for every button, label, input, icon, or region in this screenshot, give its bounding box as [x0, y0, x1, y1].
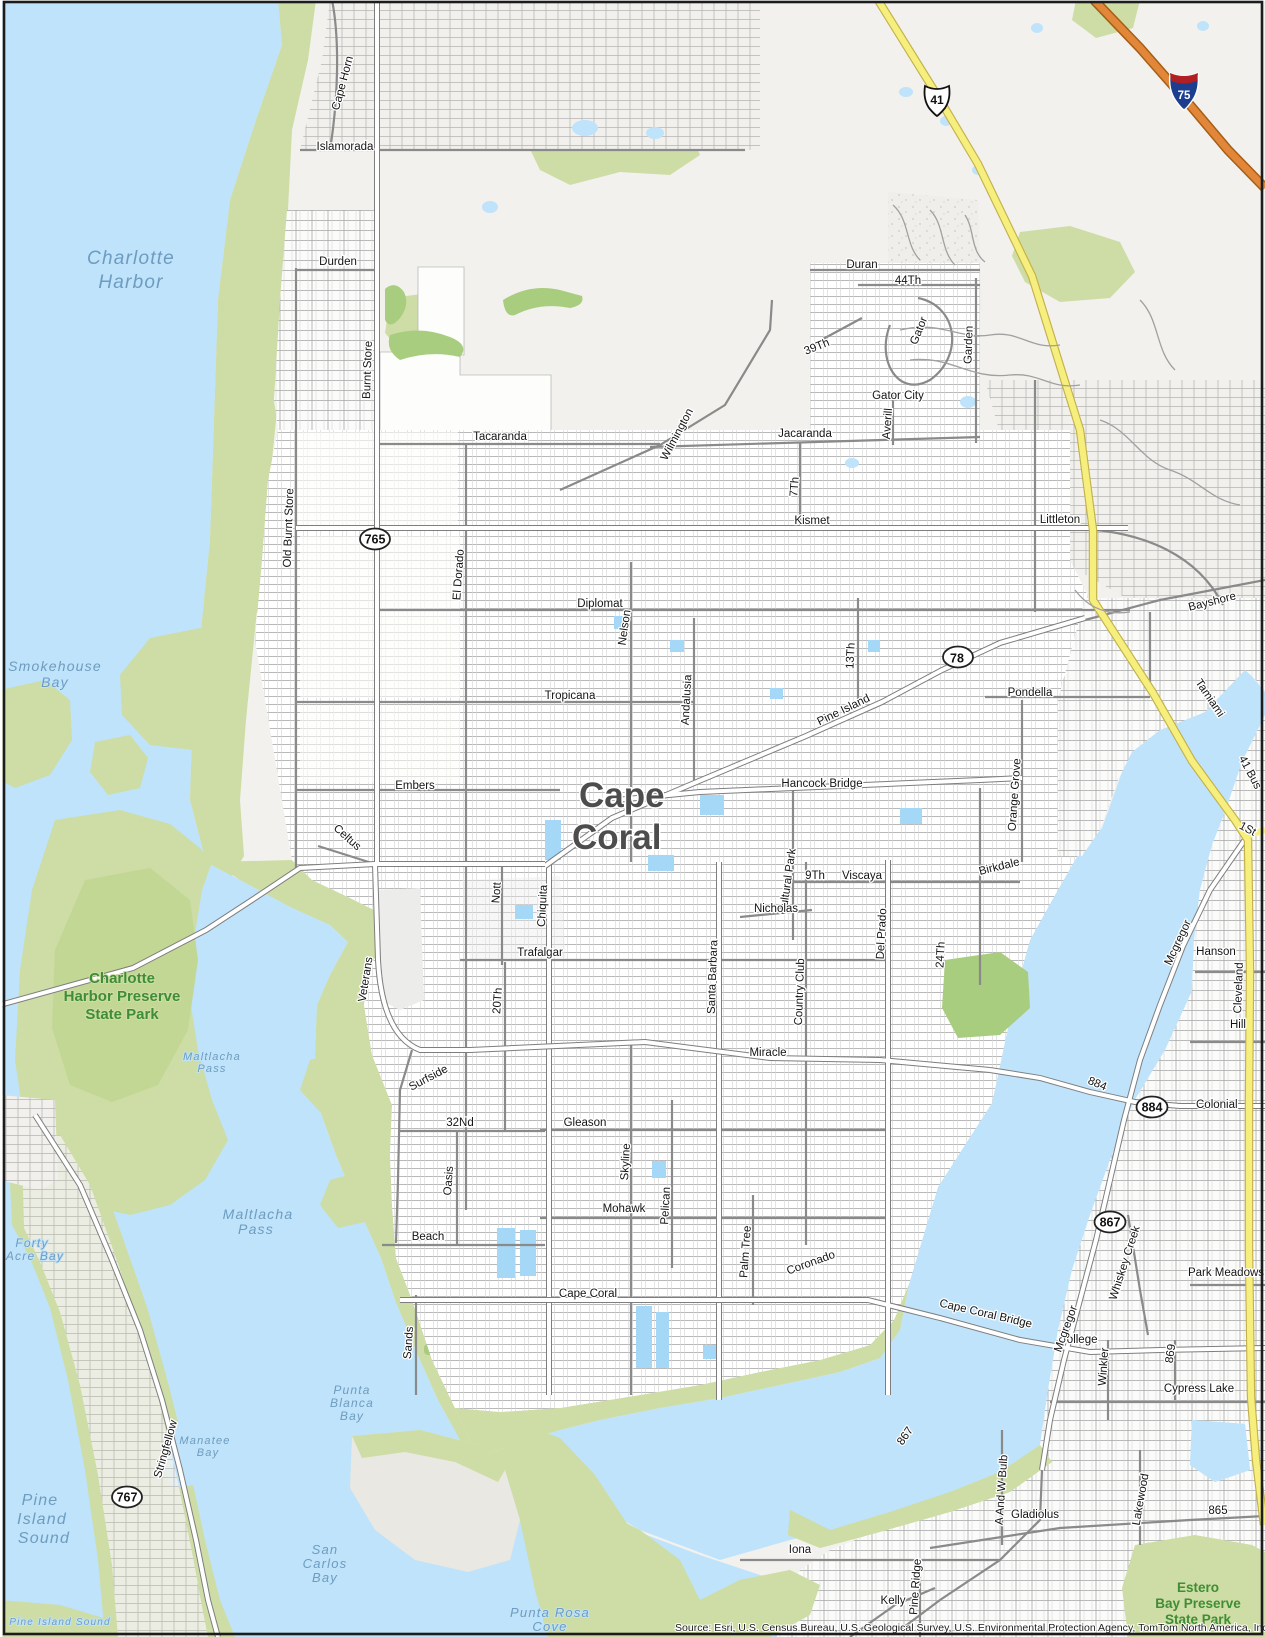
svg-text:Punta: Punta [333, 1383, 370, 1397]
svg-text:Island: Island [17, 1511, 67, 1528]
svg-text:Pelican: Pelican [659, 1187, 673, 1225]
svg-text:Mohawk: Mohawk [603, 1203, 646, 1215]
svg-text:884: 884 [1142, 1101, 1163, 1115]
svg-text:32Nd: 32Nd [446, 1117, 474, 1129]
svg-text:Oasis: Oasis [442, 1165, 456, 1195]
svg-text:767: 767 [117, 1491, 138, 1505]
svg-text:Viscaya: Viscaya [842, 870, 883, 882]
svg-text:75: 75 [1178, 90, 1191, 102]
svg-text:24Th: 24Th [934, 941, 947, 968]
svg-text:Burnt Store: Burnt Store [361, 341, 375, 400]
svg-text:Cove: Cove [532, 1619, 567, 1634]
svg-text:Hill: Hill [1230, 1019, 1246, 1031]
svg-text:Miracle: Miracle [749, 1047, 786, 1059]
svg-text:20Th: 20Th [491, 987, 505, 1014]
svg-text:865: 865 [1208, 1505, 1227, 1517]
svg-text:Charlotte: Charlotte [87, 248, 175, 269]
svg-text:Cape: Cape [579, 776, 665, 815]
svg-text:Tropicana: Tropicana [545, 690, 596, 702]
svg-text:Pondella: Pondella [1008, 687, 1053, 699]
svg-text:Colonial: Colonial [1196, 1099, 1238, 1111]
svg-text:Blanca: Blanca [330, 1396, 374, 1410]
svg-text:Country Club: Country Club [793, 958, 807, 1026]
svg-text:Nott: Nott [490, 881, 503, 904]
svg-text:Diplomat: Diplomat [577, 598, 623, 610]
svg-text:Jacaranda: Jacaranda [778, 428, 832, 440]
svg-text:867: 867 [1100, 1216, 1121, 1230]
svg-text:Beach: Beach [412, 1231, 445, 1243]
svg-text:Kismet: Kismet [794, 515, 830, 527]
svg-text:Harbor: Harbor [98, 272, 163, 293]
svg-text:San: San [312, 1542, 339, 1557]
svg-text:Pass: Pass [197, 1063, 226, 1075]
svg-text:Littleton: Littleton [1040, 514, 1080, 526]
svg-text:Gladiolus: Gladiolus [1011, 1509, 1059, 1521]
svg-text:Duran: Duran [846, 259, 877, 271]
svg-text:Kelly: Kelly [881, 1595, 906, 1607]
svg-text:Islamorada: Islamorada [317, 141, 374, 153]
svg-text:Sands: Sands [402, 1326, 416, 1360]
svg-text:Maltlacha: Maltlacha [223, 1206, 294, 1222]
svg-text:Cape Coral: Cape Coral [559, 1288, 617, 1300]
svg-text:Chiquita: Chiquita [536, 884, 550, 927]
svg-text:Pine Island Sound: Pine Island Sound [9, 1617, 111, 1628]
svg-text:Iona: Iona [789, 1544, 812, 1556]
svg-text:Gleason: Gleason [564, 1117, 607, 1129]
svg-text:Skyline: Skyline [619, 1143, 633, 1181]
svg-text:Smokehouse: Smokehouse [8, 658, 102, 674]
svg-text:7Th: 7Th [788, 476, 801, 497]
svg-text:Hancock Bridge: Hancock Bridge [781, 778, 862, 790]
svg-text:44Th: 44Th [895, 275, 921, 287]
svg-text:Pass: Pass [238, 1221, 274, 1237]
svg-text:Averill: Averill [881, 408, 895, 440]
svg-text:Durden: Durden [319, 256, 357, 268]
svg-text:Bay: Bay [340, 1409, 364, 1423]
svg-text:Bay: Bay [312, 1570, 338, 1585]
svg-text:Embers: Embers [395, 780, 435, 792]
svg-text:Coral: Coral [572, 818, 661, 857]
svg-text:765: 765 [365, 533, 386, 547]
svg-text:Cypress Lake: Cypress Lake [1164, 1383, 1234, 1395]
svg-text:State Park: State Park [85, 1006, 159, 1023]
svg-text:Gator City: Gator City [872, 390, 924, 402]
svg-text:Acre Bay: Acre Bay [5, 1249, 64, 1263]
svg-text:Nicholas: Nicholas [754, 903, 798, 915]
svg-text:Bay: Bay [197, 1447, 220, 1459]
svg-text:41: 41 [930, 93, 944, 107]
svg-text:Harbor Preserve: Harbor Preserve [64, 988, 181, 1005]
svg-text:Estero: Estero [1177, 1580, 1219, 1595]
svg-text:13Th: 13Th [844, 642, 857, 669]
svg-text:Bay Preserve: Bay Preserve [1155, 1596, 1241, 1611]
svg-text:Charlotte: Charlotte [89, 970, 155, 987]
svg-text:Punta Rosa: Punta Rosa [510, 1605, 590, 1620]
svg-text:Forty: Forty [15, 1236, 48, 1250]
svg-text:Sound: Sound [18, 1530, 70, 1547]
svg-text:78: 78 [950, 652, 964, 666]
svg-text:Carlos: Carlos [303, 1556, 348, 1571]
svg-text:Trafalgar: Trafalgar [517, 947, 563, 959]
svg-text:Manatee: Manatee [179, 1435, 230, 1447]
svg-text:Garden: Garden [962, 326, 975, 365]
svg-text:Cleveland: Cleveland [1232, 962, 1246, 1014]
svg-text:Source: Esri, U.S. Census Bure: Source: Esri, U.S. Census Bureau, U.S. G… [675, 1622, 1265, 1634]
svg-text:Bay: Bay [41, 674, 69, 690]
svg-text:Tacaranda: Tacaranda [473, 431, 527, 443]
svg-text:9Th: 9Th [805, 870, 825, 882]
svg-text:Park Meadows: Park Meadows [1188, 1267, 1264, 1279]
svg-text:Pine: Pine [22, 1492, 59, 1509]
svg-text:Maltlacha: Maltlacha [183, 1051, 241, 1063]
svg-text:Hanson: Hanson [1196, 946, 1236, 958]
